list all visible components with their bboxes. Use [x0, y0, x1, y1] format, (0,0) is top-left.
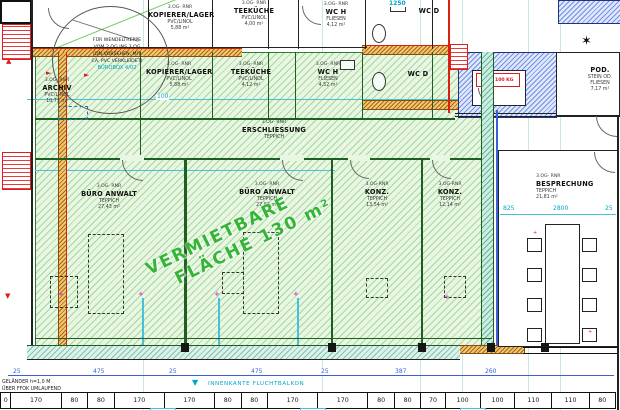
- room-buero-anwalt-1: 3.OG- RNRBÜRO ANWALTTEPPICH27,43 m²: [76, 184, 142, 211]
- room-label-area: 7,17 m²: [584, 87, 616, 93]
- room-label-name: WC D: [404, 70, 432, 79]
- fluchtbalkon-note: INNENKANTE FLUCHTBALKON: [208, 381, 304, 387]
- column: [418, 343, 426, 352]
- adjacent-room: [0, 0, 32, 24]
- bottom-dim-value: 170: [317, 393, 367, 408]
- furniture-outline: [366, 278, 388, 298]
- door-arc: [596, 116, 617, 137]
- wall: [212, 0, 213, 49]
- wall-blue-top: [558, 0, 620, 24]
- red-annotation-box: [2, 24, 31, 60]
- toilet-fixture: [372, 24, 386, 43]
- red-annotation-box: [450, 44, 468, 70]
- toilet-fixture: [372, 72, 386, 91]
- room-label-name: ARCHIV: [36, 84, 78, 93]
- bottom-dim-value: 170: [164, 393, 214, 408]
- wall: [362, 52, 363, 118]
- room-kopierer-lager: 3.OG- RNRKOPIERER/LAGERPVC/LINOL5,88 m²: [146, 62, 212, 89]
- chair: [582, 268, 597, 282]
- dim-main: 387: [394, 369, 407, 375]
- chair: [582, 238, 597, 252]
- marker-icon: +: [293, 291, 299, 298]
- marker-icon: +: [444, 294, 450, 301]
- red-marker: +: [533, 231, 537, 236]
- chair: [527, 268, 542, 282]
- bottom-dim-value: 170: [267, 393, 317, 408]
- room-label-name: WC H: [306, 68, 350, 77]
- room-label-name: TEEKÜCHE: [222, 68, 280, 77]
- red-triangle-icon: ▲: [6, 58, 11, 65]
- room-wc-d: WC D: [404, 70, 432, 79]
- bottom-dim-value: 80: [61, 393, 88, 408]
- red-arrow-icon: ►: [46, 70, 51, 77]
- red-marker: +: [588, 330, 592, 335]
- room-label-name: BESPRECHUNG: [536, 180, 612, 189]
- dim-825: 825: [502, 206, 515, 212]
- wall: [212, 52, 213, 118]
- room-teekueche: 3.OG- RNRTEEKÜCHEPVC/LINOL4,12 m²: [222, 62, 280, 89]
- room-archiv: 3.OG- RNRARCHIVPVC/LINOL10,73 m²: [36, 78, 78, 105]
- room-label-area: 4,00 m²: [226, 22, 282, 28]
- dim-2800: 2800: [552, 206, 569, 212]
- triangle-marker-icon: ▼: [192, 378, 198, 387]
- bottom-dim-value: 100: [445, 393, 480, 408]
- room-label-area: 10,73 m²: [36, 99, 78, 105]
- room-teekueche-top: 3.OG- RNRTEEKÜCHEPVC/LINOL4,00 m²: [226, 1, 282, 28]
- room-label-name: ERSCHLIESSUNG: [238, 126, 310, 135]
- wall: [140, 52, 141, 158]
- wall: [31, 0, 33, 345]
- room-label-name: KOPIERER/LAGER: [148, 11, 212, 20]
- dim-main: 260: [484, 369, 497, 375]
- wall: [35, 158, 492, 160]
- dim-1250: 1250: [388, 1, 407, 7]
- red-triangle-icon: ▼: [5, 293, 10, 300]
- dim-main: 475: [92, 369, 105, 375]
- bottom-dim-value: 170: [114, 393, 164, 408]
- dim-25: 25: [604, 206, 614, 212]
- room-wc-h-top: 3.OG- RNRWC HFLIESEN4,12 m²: [312, 2, 360, 29]
- room-label-name: TEEKÜCHE: [226, 7, 282, 16]
- room-label-area: 4,12 m²: [222, 83, 280, 89]
- room-label-area: 5,88 m²: [146, 83, 212, 89]
- balcony-strip: [27, 345, 460, 360]
- bottom-dim-value: 0: [0, 393, 10, 408]
- room-besprechung: 3.OG- RNRBESPRECHUNGTEPPICH21,81 m²: [536, 174, 612, 201]
- bottom-dim-value: 80: [394, 393, 421, 408]
- floor-plan: 100 3.OG- RNRKOPIERER/LAGERPVC/LINOL5,88…: [0, 0, 620, 410]
- room-label-name: KOPIERER/LAGER: [146, 68, 212, 77]
- wall: [365, 0, 366, 49]
- room-erschliessung: 3.OG- RNRERSCHLIESSUNGTEPPICH: [238, 120, 310, 141]
- chair: [582, 298, 597, 312]
- wall-orange-topright: [362, 45, 457, 55]
- room-label-name: POD.: [584, 66, 616, 75]
- chair: [527, 298, 542, 312]
- wall: [617, 115, 619, 410]
- room-label-name: KONZ.: [426, 188, 474, 197]
- room-label-area: 12,14 m²: [426, 203, 474, 209]
- wall: [432, 52, 433, 118]
- red-annotation-box: [2, 152, 31, 190]
- wall: [35, 338, 492, 339]
- meeting-table: [545, 224, 580, 344]
- column: [487, 343, 495, 352]
- dim-main: 25: [168, 369, 178, 375]
- room-wc-h: 3.OG- RNRWC HFLIESEN4,52 m²: [306, 62, 350, 89]
- room-label-area: 21,81 m²: [536, 195, 612, 201]
- bottom-dim-value: 170: [10, 393, 60, 408]
- furniture-outline: [222, 272, 244, 294]
- room-wc-d-top: WC D: [416, 7, 442, 16]
- wall-teal-east: [481, 52, 494, 345]
- wall-double-line: [523, 347, 618, 354]
- bottom-dim-value: 80: [589, 393, 617, 408]
- room-label-name: WC H: [312, 8, 360, 17]
- note-line: VOM 2.OG INS 3.OG: [74, 44, 160, 51]
- room-label-area: 4,52 m²: [306, 83, 350, 89]
- room-label-area: 13,54 m²: [352, 203, 402, 209]
- note-line: FÜR WENDELTREPPE: [74, 37, 160, 44]
- bottom-dim-value: 80: [241, 393, 268, 408]
- marker-icon: +: [214, 291, 220, 298]
- grid-dim-100: 100: [156, 94, 169, 100]
- note-line: GELÄNDER h=1,0 M: [2, 379, 61, 386]
- room-label-name: BÜRO ANWALT: [76, 190, 142, 199]
- marker-icon: +: [58, 291, 64, 298]
- bottom-dim-value: 100: [480, 393, 515, 408]
- wall: [298, 0, 299, 49]
- red-arrow-icon: ►: [84, 72, 89, 79]
- column: [328, 343, 336, 352]
- furniture-outline: [58, 106, 88, 120]
- room-label-area: 4,12 m²: [312, 23, 360, 29]
- bottom-dim-value: 80: [214, 393, 241, 408]
- chair: [527, 238, 542, 252]
- room-pod: POD.STEIN OD. FLIESEN7,17 m²: [584, 66, 616, 93]
- note-line: (DN VORSEHEN, MIT: [74, 51, 160, 58]
- column: [181, 343, 189, 352]
- wall: [295, 52, 296, 118]
- north-arrow-icon: ✶: [581, 34, 592, 49]
- room-label-material: STEIN OD. FLIESEN: [584, 75, 616, 87]
- dim-main: 25: [320, 369, 330, 375]
- bottom-dim-value: 80: [367, 393, 394, 408]
- room-label-material: TEPPICH: [238, 135, 310, 141]
- bottom-dim-value: 110: [551, 393, 588, 408]
- furniture-outline: [50, 276, 78, 308]
- bottom-dimension-row: 0170808017017080801701708080701001001101…: [0, 392, 616, 409]
- furniture-outline: [88, 234, 124, 314]
- chair: [527, 328, 542, 342]
- room-konz-2: 3.OG-RNRKONZ.TEPPICH12,14 m²: [426, 182, 474, 209]
- dim-main: 25: [12, 369, 22, 375]
- marker-icon: +: [138, 291, 144, 298]
- wall: [421, 158, 423, 345]
- bottom-dim-value: 80: [87, 393, 114, 408]
- room-label-area: 27,43 m²: [76, 205, 142, 211]
- dim-line: [500, 214, 616, 215]
- bottom-dim-value: 70: [420, 393, 444, 408]
- dim-main: 475: [250, 369, 263, 375]
- dim-line: [8, 375, 614, 376]
- room-label-name: WC D: [416, 7, 442, 16]
- bottom-dim-value: 110: [514, 393, 551, 408]
